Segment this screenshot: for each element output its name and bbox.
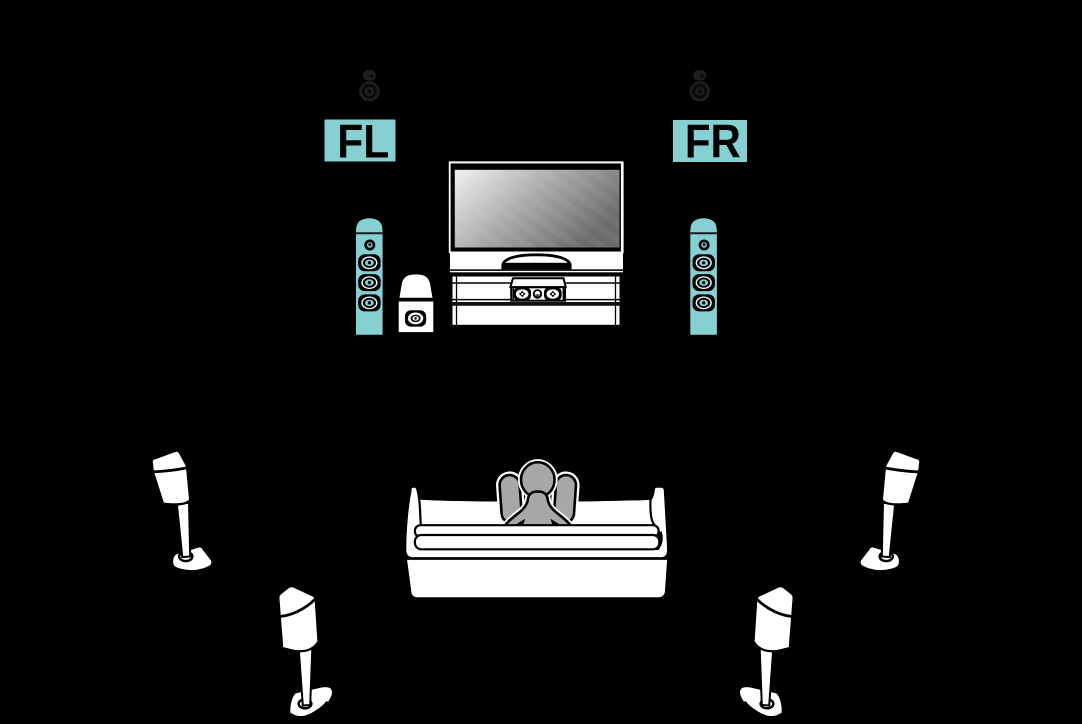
- svg-text:FR: FR: [685, 116, 741, 169]
- svg-text:FL: FL: [337, 116, 389, 169]
